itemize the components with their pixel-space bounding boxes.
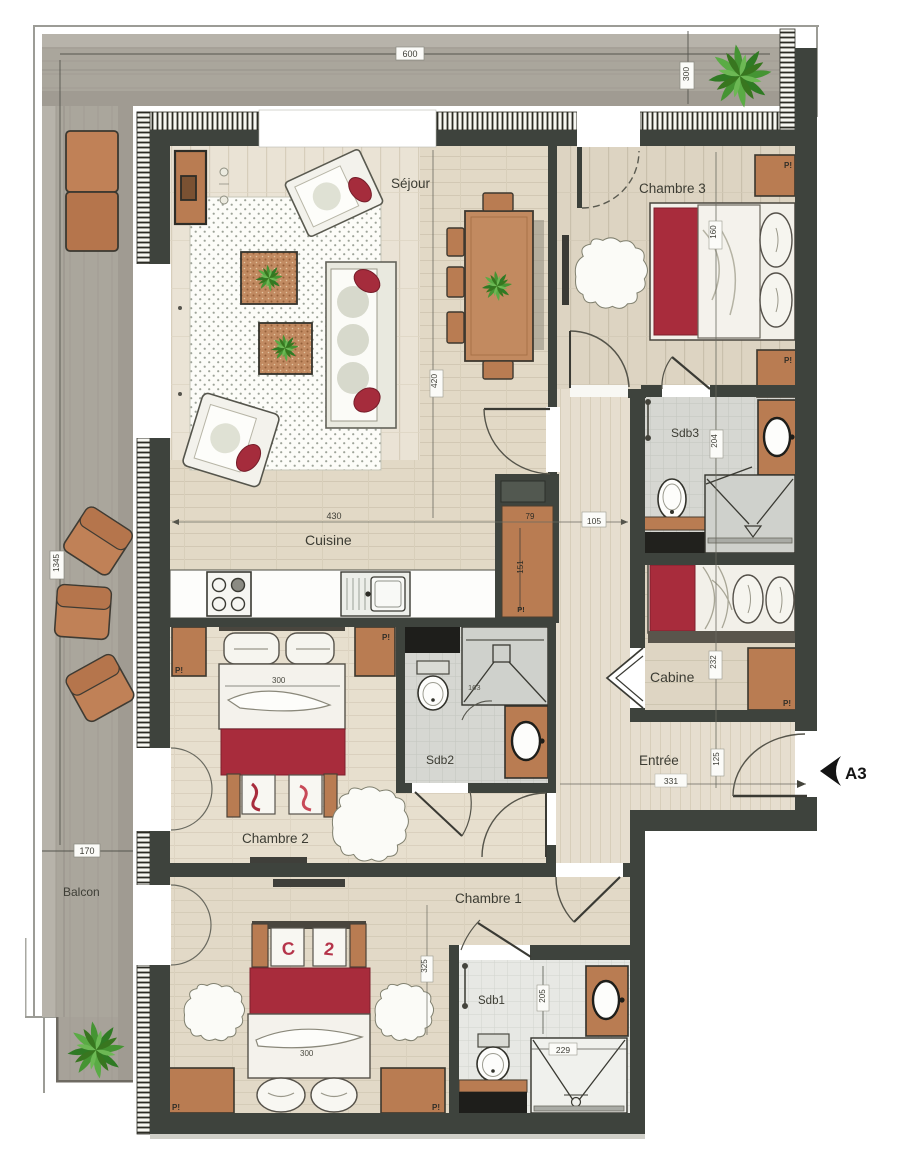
svg-text:105: 105 — [587, 516, 601, 526]
svg-text:Balcon: Balcon — [63, 885, 100, 899]
svg-text:420: 420 — [429, 374, 439, 388]
svg-text:Chambre 3: Chambre 3 — [639, 181, 706, 196]
svg-text:Sdb2: Sdb2 — [426, 753, 454, 767]
svg-text:600: 600 — [402, 49, 417, 59]
svg-text:P!: P! — [432, 1103, 440, 1112]
svg-text:232: 232 — [709, 655, 718, 669]
svg-text:163: 163 — [468, 683, 481, 692]
svg-text:300: 300 — [681, 67, 691, 81]
svg-text:325: 325 — [420, 959, 429, 973]
svg-text:125: 125 — [712, 752, 721, 766]
svg-text:Séjour: Séjour — [391, 176, 431, 191]
svg-text:C: C — [281, 938, 297, 960]
svg-text:P!: P! — [784, 356, 792, 365]
svg-text:P!: P! — [175, 666, 183, 675]
svg-text:79: 79 — [526, 512, 535, 521]
svg-text:P!: P! — [517, 605, 525, 614]
svg-text:229: 229 — [556, 1045, 570, 1055]
svg-text:2: 2 — [323, 939, 335, 960]
svg-text:331: 331 — [664, 776, 678, 786]
svg-text:P!: P! — [784, 161, 792, 170]
svg-text:205: 205 — [538, 989, 547, 1003]
svg-text:160: 160 — [709, 225, 718, 239]
svg-text:P!: P! — [382, 633, 390, 642]
svg-text:1345: 1345 — [52, 554, 61, 572]
svg-text:Entrée: Entrée — [639, 753, 679, 768]
svg-text:Chambre 1: Chambre 1 — [455, 891, 522, 906]
svg-text:170: 170 — [79, 846, 94, 856]
svg-text:Sdb3: Sdb3 — [671, 426, 699, 440]
svg-text:430: 430 — [326, 511, 341, 521]
svg-text:A3: A3 — [845, 764, 867, 783]
svg-text:Cabine: Cabine — [650, 669, 695, 685]
svg-text:Sdb1: Sdb1 — [478, 995, 505, 1007]
svg-text:300: 300 — [272, 676, 286, 685]
svg-text:151: 151 — [516, 560, 525, 574]
svg-text:P!: P! — [172, 1103, 180, 1112]
svg-text:Chambre 2: Chambre 2 — [242, 831, 309, 846]
svg-text:Cuisine: Cuisine — [305, 532, 352, 548]
svg-text:300: 300 — [300, 1049, 314, 1058]
svg-text:P!: P! — [783, 699, 791, 708]
svg-text:204: 204 — [710, 434, 719, 448]
